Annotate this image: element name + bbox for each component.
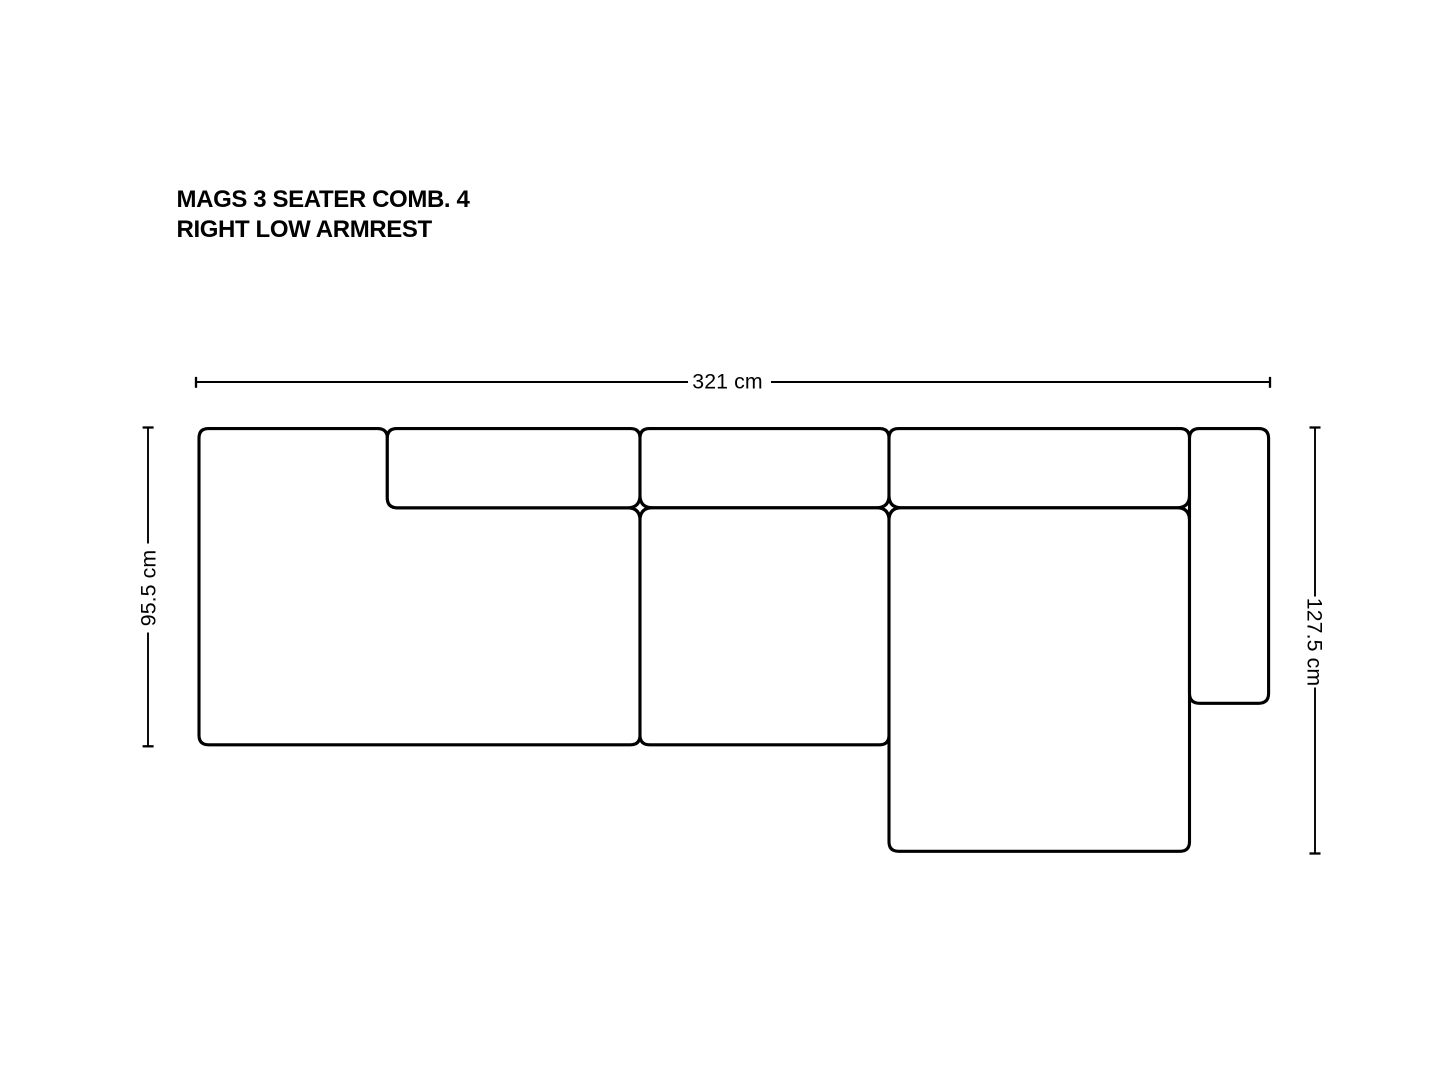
svg-text:MAGS 3 SEATER COMB. 4: MAGS 3 SEATER COMB. 4 <box>177 186 471 213</box>
svg-text:321 cm: 321 cm <box>692 370 762 394</box>
svg-text:127.5 cm: 127.5 cm <box>1302 598 1326 686</box>
svg-text:95.5 cm: 95.5 cm <box>137 550 161 626</box>
svg-text:RIGHT LOW ARMREST: RIGHT LOW ARMREST <box>177 216 433 243</box>
